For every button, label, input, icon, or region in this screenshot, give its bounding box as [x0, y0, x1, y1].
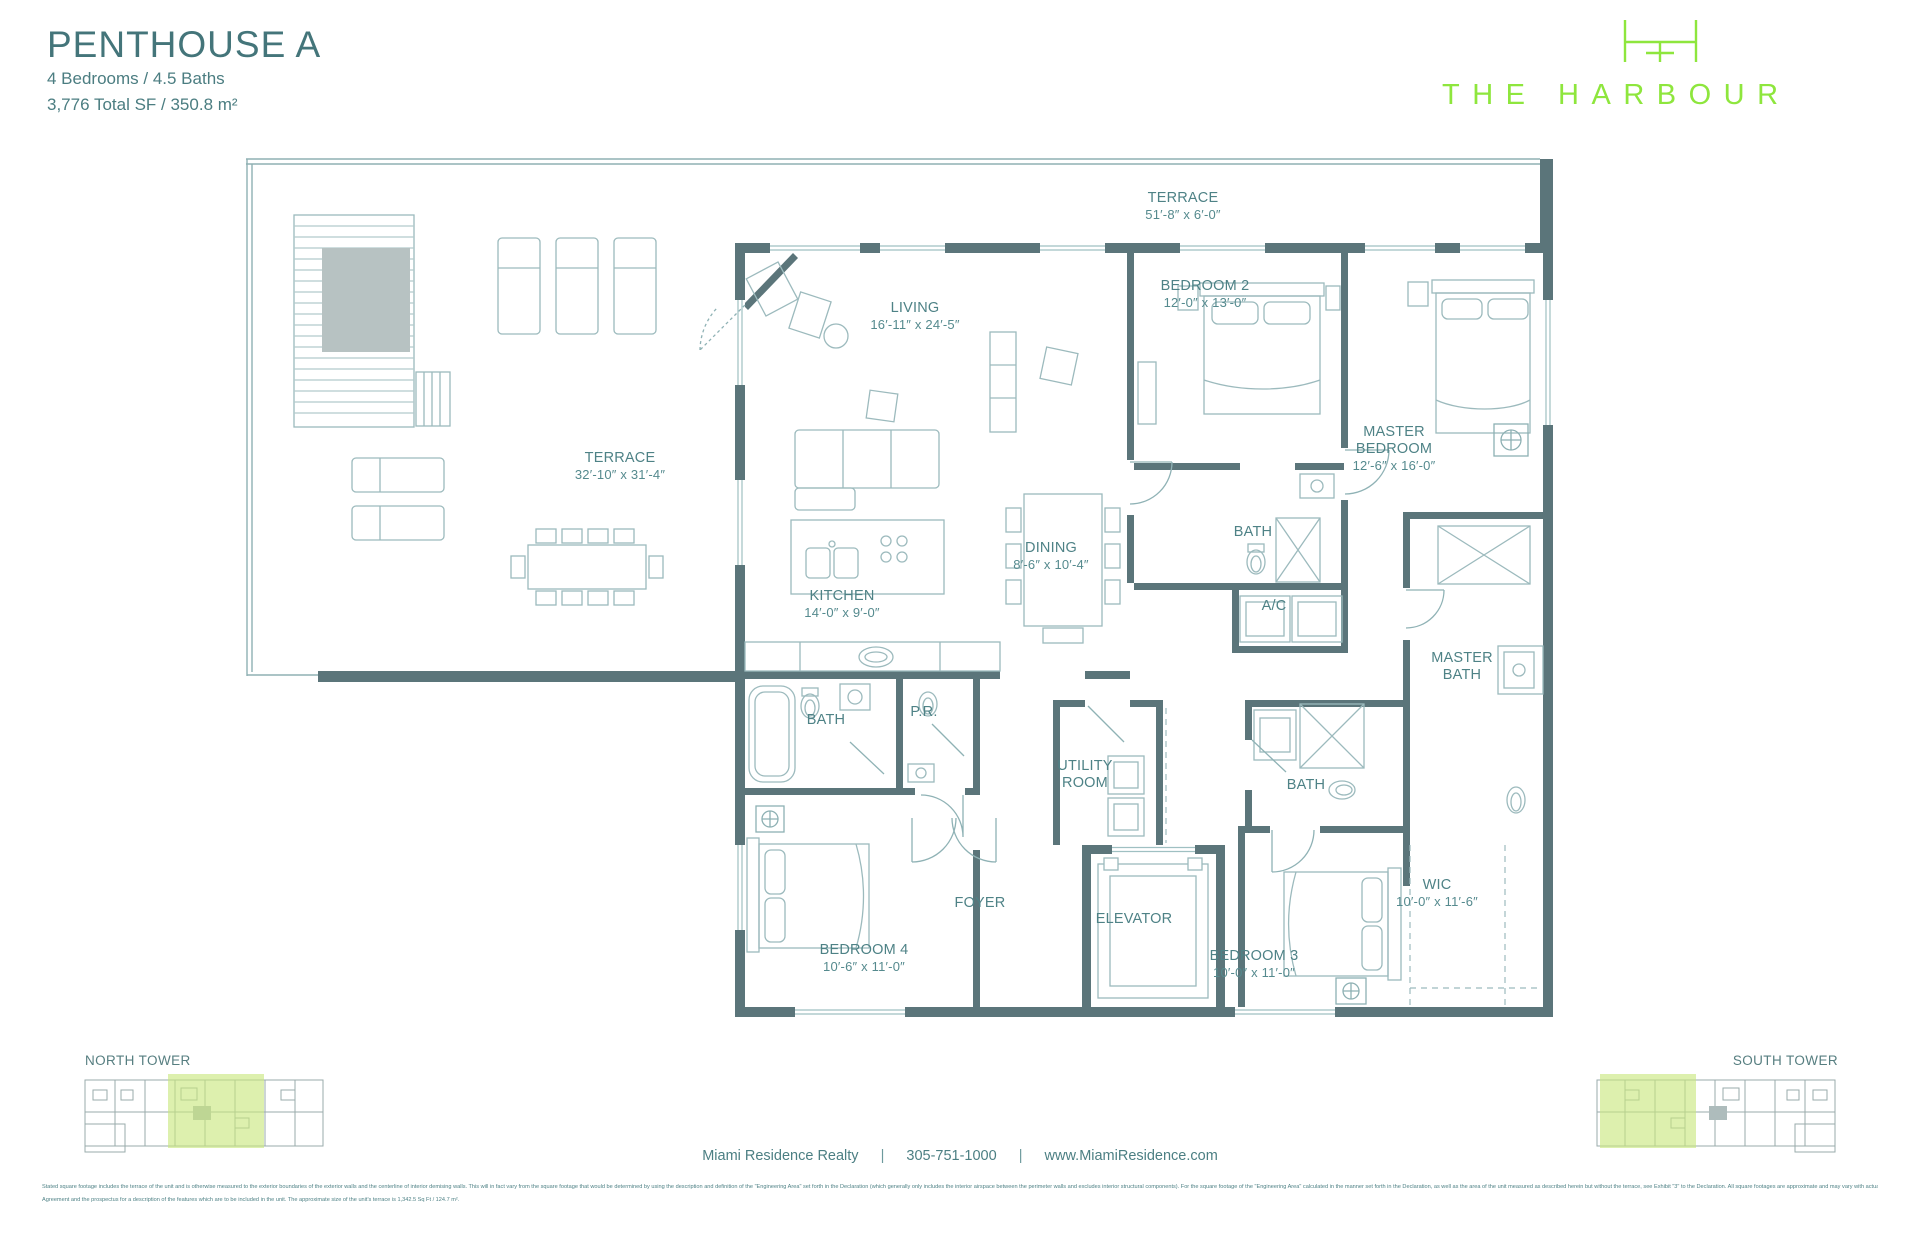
- room-label-bath-3: BATH: [1287, 777, 1325, 794]
- north-tower-label: NORTH TOWER: [85, 1053, 191, 1068]
- room-label-foyer: FOYER: [955, 895, 1006, 912]
- room-label-bedroom-3: BEDROOM 3 10′-0″ x 11′-0″: [1210, 948, 1299, 981]
- keyplan-north-highlight: [168, 1074, 264, 1148]
- south-tower-label: SOUTH TOWER: [1733, 1053, 1838, 1068]
- footer-contact: Miami Residence Realty | 305-751-1000 | …: [0, 1148, 1920, 1164]
- room-label-master-bath: MASTER BATH: [1422, 650, 1502, 684]
- walls: [318, 159, 1553, 1017]
- room-label-bath-2: BATH: [1234, 524, 1272, 541]
- keyplan-south: [1597, 1074, 1835, 1152]
- realty-website: www.MiamiResidence.com: [1045, 1148, 1218, 1164]
- disclaimer-line-2: Agreement and the prospectus for a descr…: [42, 1197, 1878, 1204]
- room-label-wic: WIC 10′-0″ x 11′-6″: [1396, 877, 1478, 910]
- room-label-terrace-top: TERRACE 51′-8″ x 6′-0″: [1145, 190, 1220, 223]
- room-label-bedroom-4: BEDROOM 4 10′-6″ x 11′-0″: [820, 942, 909, 975]
- terrace-spa: [322, 248, 410, 352]
- room-label-living: LIVING 16′-11″ x 24′-5″: [870, 300, 959, 333]
- room-label-bath-4: BATH: [807, 712, 845, 729]
- room-label-kitchen: KITCHEN 14′-0″ x 9′-0″: [804, 588, 879, 621]
- footer-separator: |: [881, 1148, 885, 1164]
- floor-plan-drawing: [0, 0, 1920, 1242]
- realty-name: Miami Residence Realty: [702, 1148, 858, 1164]
- room-label-ac: A/C: [1262, 598, 1287, 615]
- room-label-powder-room: P.R.: [910, 704, 937, 721]
- room-label-dining: DINING 8′-6″ x 10′-4″: [1013, 540, 1088, 573]
- keyplan-north: [85, 1074, 323, 1152]
- keyplan-south-highlight: [1600, 1074, 1696, 1148]
- floorplan-sheet: { "header": { "title": "PENTHOUSE A", "s…: [0, 0, 1920, 1242]
- disclaimer-line-1: Stated square footage includes the terra…: [42, 1184, 1878, 1191]
- room-label-utility-room: UTILITY ROOM: [1049, 758, 1121, 792]
- footer-separator: |: [1019, 1148, 1023, 1164]
- room-label-master-bedroom: MASTER BEDROOM 12′-6″ x 16′-0″: [1339, 424, 1449, 474]
- room-label-terrace-left: TERRACE 32′-10″ x 31′-4″: [575, 450, 665, 483]
- room-label-bedroom-2: BEDROOM 2 12′-0″ x 13′-0″: [1161, 278, 1250, 311]
- room-label-elevator: ELEVATOR: [1096, 911, 1173, 928]
- realty-phone: 305-751-1000: [906, 1148, 996, 1164]
